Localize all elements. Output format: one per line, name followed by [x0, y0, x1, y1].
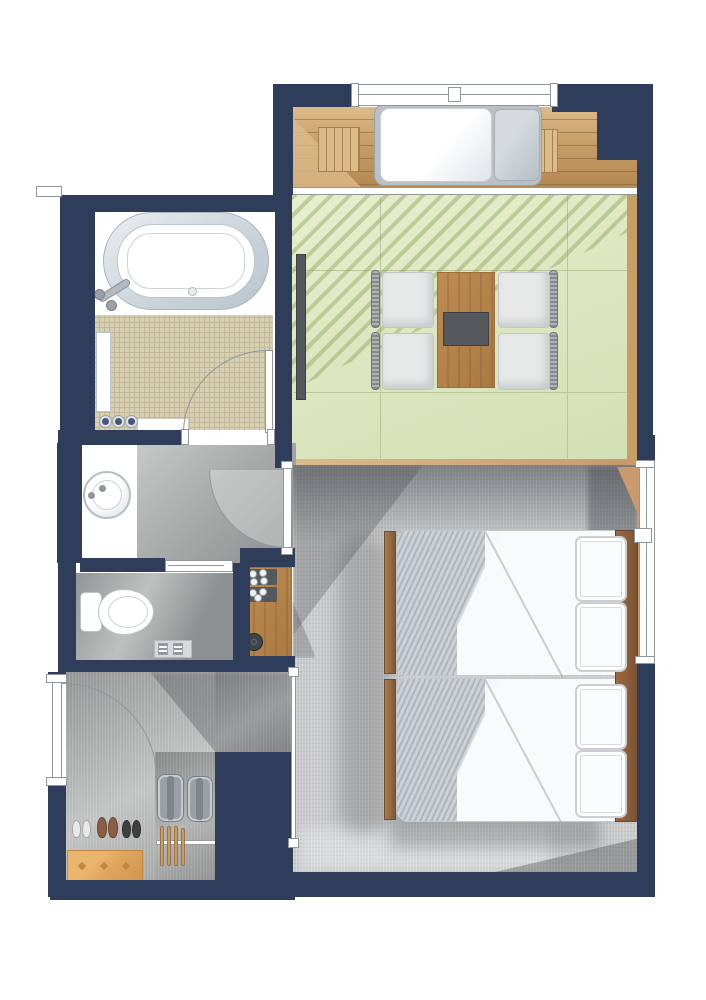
door-jamb — [281, 461, 293, 469]
shoe-white — [72, 820, 81, 838]
bedroom-partition — [291, 676, 296, 840]
hanger — [174, 826, 178, 866]
door-jamb — [267, 429, 275, 445]
tv-panel — [296, 254, 306, 400]
toilet-sliding-door — [165, 560, 233, 572]
toilet-seat-line — [108, 596, 148, 628]
shoe-black — [122, 820, 131, 838]
pillow — [575, 684, 627, 750]
suitcase-band — [167, 776, 174, 820]
suitcase-band — [196, 778, 203, 820]
hanger-rail — [156, 840, 216, 845]
window-jamb — [635, 460, 655, 468]
chair-back — [371, 332, 380, 390]
wall — [60, 195, 292, 212]
window-glass-line — [646, 467, 647, 658]
shower-knob — [106, 300, 117, 311]
cup — [254, 594, 262, 602]
bathtub-jet — [188, 287, 197, 296]
partition-jamb — [288, 838, 299, 848]
lounger-back-cushion — [494, 109, 540, 181]
railing-end — [550, 83, 558, 107]
wall — [60, 212, 95, 443]
wall — [552, 84, 653, 112]
lounger-mattress — [380, 108, 492, 182]
cup — [259, 569, 267, 577]
basin-inner — [92, 480, 122, 510]
toiletry-bottle — [126, 416, 137, 427]
entry-corridor-floor — [215, 672, 293, 752]
shoe-brown — [108, 817, 118, 838]
wall — [275, 195, 292, 468]
chair-seat — [498, 333, 550, 390]
footboard — [384, 531, 396, 674]
chair-seat — [382, 333, 434, 390]
toiletry-bottle — [113, 416, 124, 427]
bedroom-window — [639, 467, 655, 658]
wall — [58, 563, 76, 672]
door-jamb — [46, 674, 67, 683]
wall — [637, 658, 655, 872]
deck-door-track — [293, 187, 637, 195]
wall — [233, 563, 250, 668]
door-jamb — [281, 547, 293, 555]
shoe-black — [132, 820, 141, 838]
shoe-white — [82, 820, 91, 838]
toiletry-bottle — [100, 416, 111, 427]
tile-joint — [293, 392, 636, 393]
serving-tray — [443, 312, 489, 346]
door-jamb — [181, 429, 189, 445]
wall — [58, 660, 295, 672]
chair-seat — [498, 272, 550, 328]
railing-post — [448, 87, 461, 102]
cup — [250, 578, 258, 586]
pillow — [575, 750, 627, 818]
chair-seat — [382, 272, 434, 328]
paper-roll — [158, 643, 168, 655]
chair-back — [549, 332, 558, 390]
wall — [293, 872, 655, 897]
wall — [273, 105, 293, 195]
entrance-door-leaf — [52, 682, 62, 778]
floor-plan-canvas — [0, 0, 706, 1000]
wall — [637, 160, 653, 467]
bathtub-basin-line — [127, 233, 245, 289]
chair-back — [549, 270, 558, 328]
partition-jamb — [288, 667, 299, 677]
living-wood-edge — [627, 195, 637, 462]
wall — [57, 443, 82, 563]
hanger — [181, 828, 185, 866]
chair-back — [371, 270, 380, 328]
wall — [215, 752, 293, 880]
hall-door-leaf — [283, 468, 292, 548]
window-jamb — [635, 656, 655, 664]
faucet — [99, 485, 106, 492]
bathroom-door-leaf — [265, 350, 273, 433]
hanger — [160, 826, 164, 866]
door-jamb — [46, 777, 67, 786]
pillow — [575, 536, 627, 602]
pillow — [575, 602, 627, 672]
kettle-lid — [251, 639, 257, 645]
wall — [597, 112, 653, 160]
wall — [273, 84, 357, 107]
cup — [260, 577, 268, 585]
shower-knob — [94, 289, 105, 300]
faucet — [88, 492, 95, 499]
deck-slat-bench-left — [318, 127, 360, 172]
cup — [249, 570, 257, 578]
wall — [80, 558, 165, 572]
shoe-brown — [97, 817, 107, 838]
window-mullion — [634, 528, 652, 543]
footboard — [384, 679, 396, 820]
paper-roll — [173, 643, 183, 655]
exterior-sill — [36, 186, 62, 197]
hanger — [167, 826, 171, 866]
toilet-sliding-track — [168, 565, 224, 566]
railing-end — [351, 83, 359, 107]
bath-wall-bench — [96, 332, 111, 412]
wall — [50, 880, 295, 900]
